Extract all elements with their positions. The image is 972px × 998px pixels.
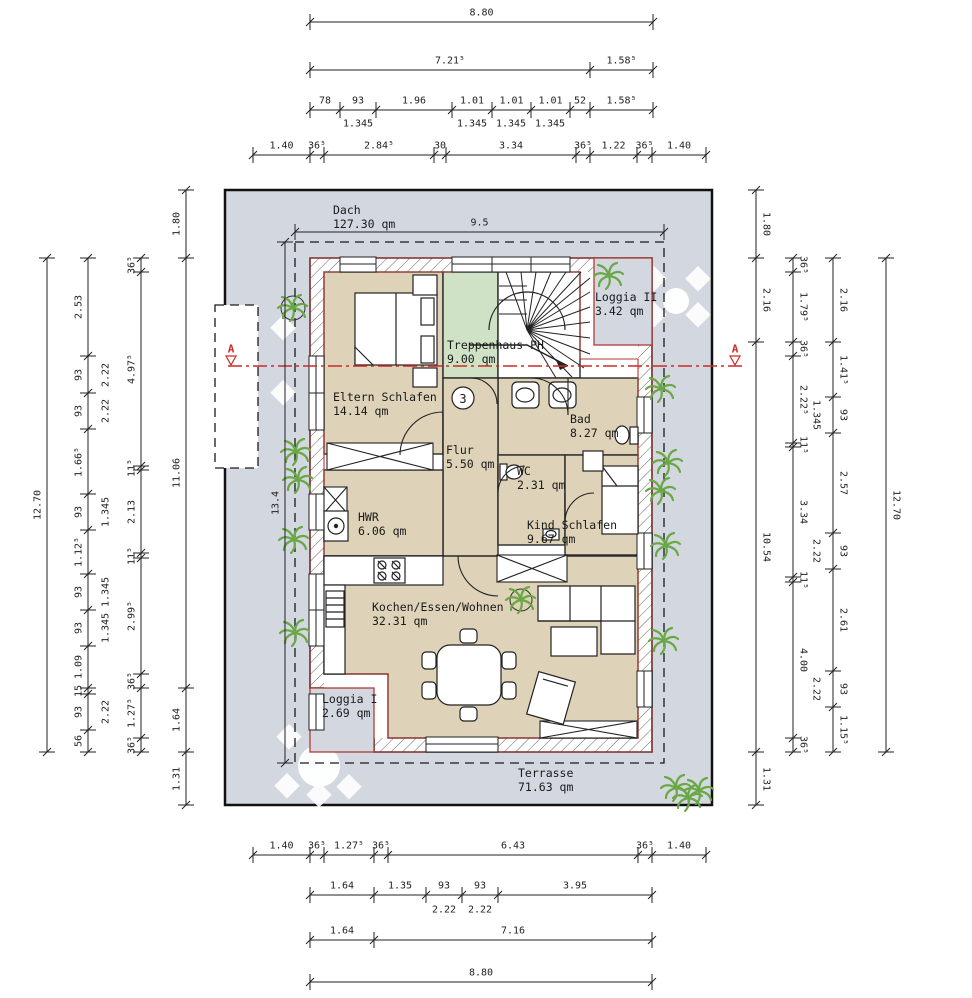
carport-outline bbox=[215, 305, 258, 468]
fridge bbox=[326, 591, 344, 627]
loggia-2-area bbox=[594, 258, 652, 345]
coffee-table bbox=[551, 627, 597, 656]
dining-table bbox=[437, 645, 501, 705]
toilet bbox=[615, 426, 629, 444]
floorplan-drawing: 8.807.21⁵1.58⁵78931.961.011.011.01521.58… bbox=[0, 0, 972, 998]
bed-kind bbox=[602, 466, 638, 534]
wc-sink bbox=[546, 531, 556, 538]
storey-marker-circle bbox=[452, 387, 474, 409]
floorplan-svg bbox=[0, 0, 972, 998]
